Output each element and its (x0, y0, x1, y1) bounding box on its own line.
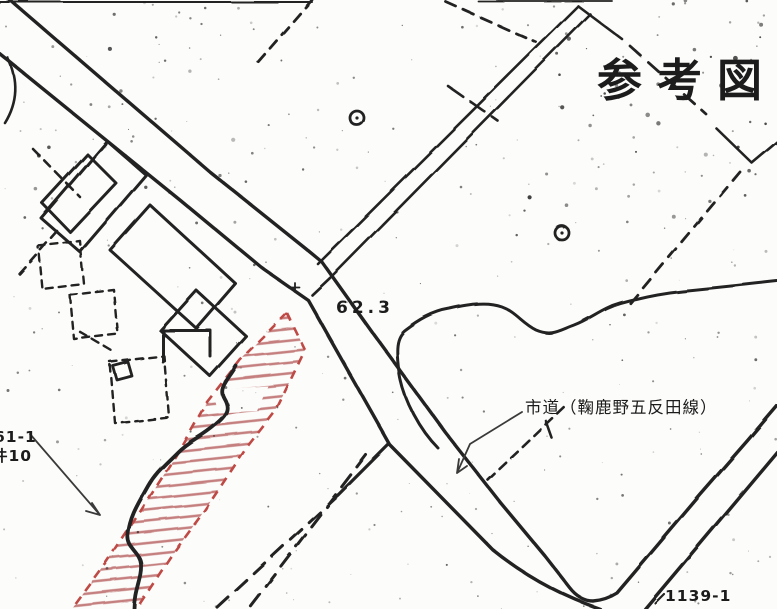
parcel-label-line1: 61-1 (0, 428, 37, 446)
road-name-label: 市道（鞠鹿野五反田線） (525, 398, 718, 417)
parcel-number-label: 1139-1 (665, 587, 731, 605)
map-canvas: 参考図 62.3 市道（鞠鹿野五反田線） 61-1 件10 1139-1 (0, 0, 777, 609)
map-title: 参考図 (597, 54, 777, 107)
parcel-label-line2: 件10 (0, 446, 32, 465)
spot-elevation-label: 62.3 (336, 298, 394, 318)
reference-map: 参考図 62.3 市道（鞠鹿野五反田線） 61-1 件10 1139-1 (0, 0, 777, 609)
